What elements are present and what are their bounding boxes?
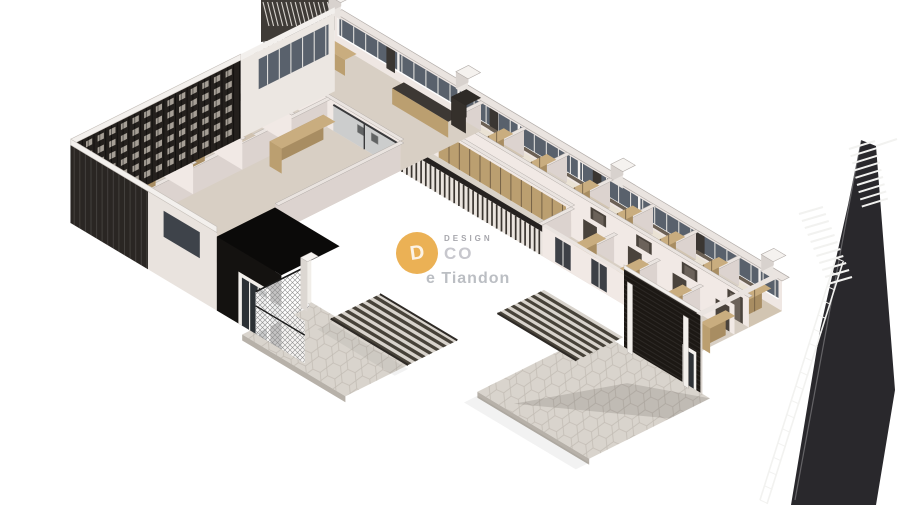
entrance-court bbox=[217, 208, 457, 403]
sign-pylon bbox=[760, 139, 897, 505]
floor-plan-render: D DESIGN CO e Tiandon bbox=[0, 0, 900, 506]
scene-svg bbox=[0, 0, 900, 506]
